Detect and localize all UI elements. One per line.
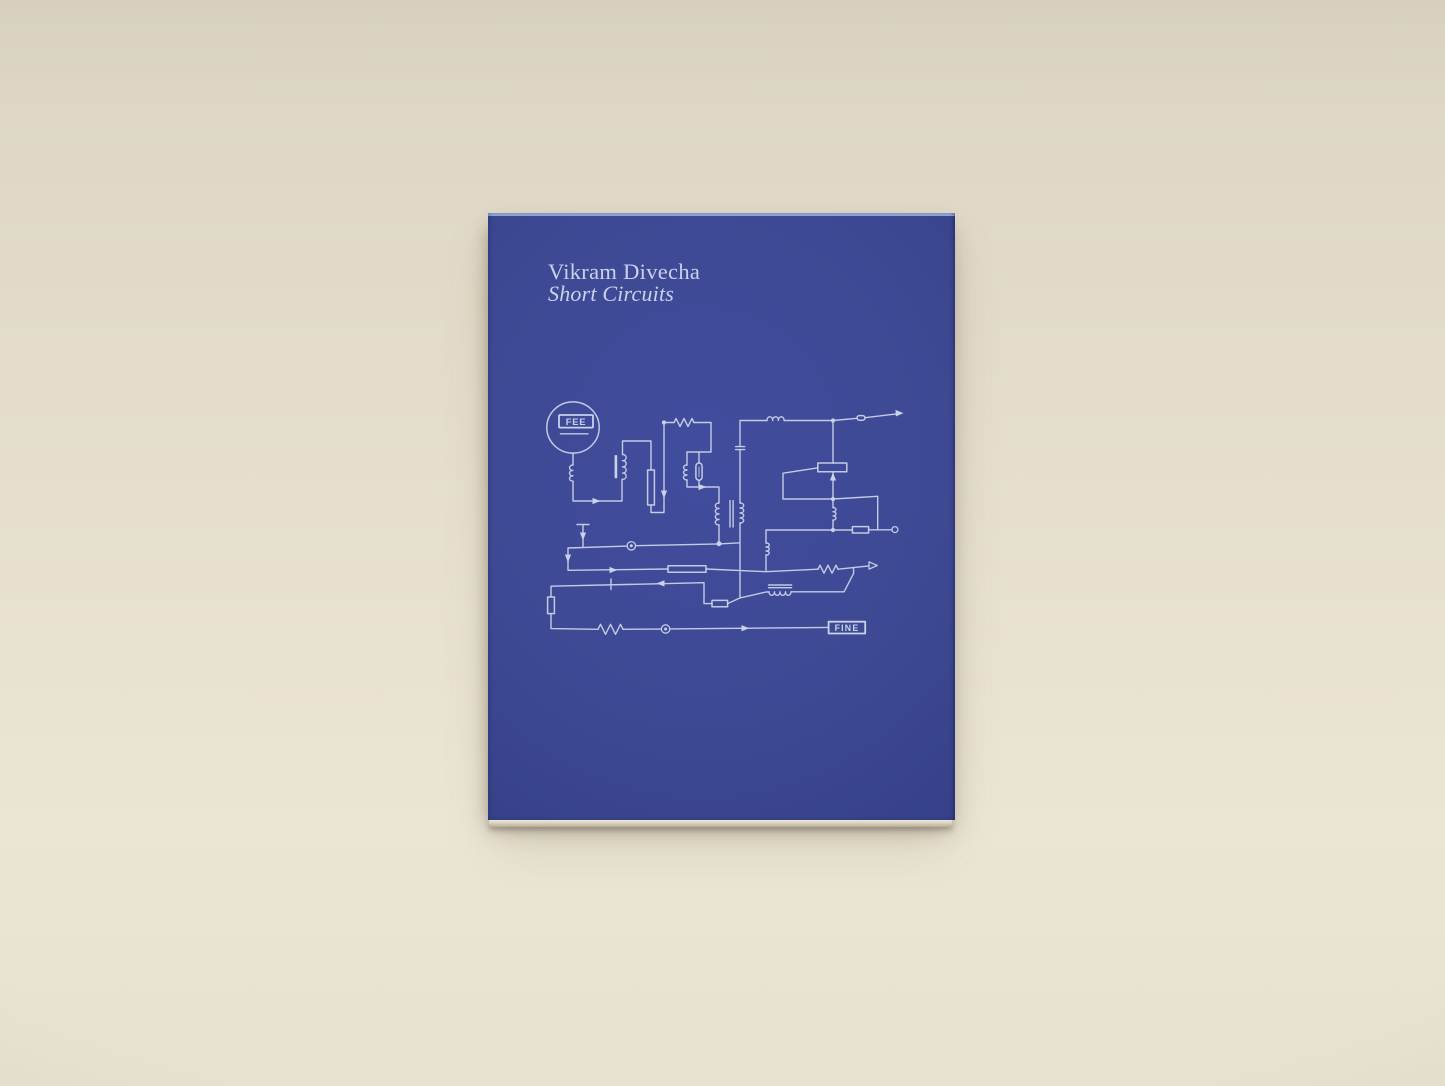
coil-core-bar — [615, 455, 618, 478]
arrow-right-icon — [610, 567, 618, 573]
junction-dot — [831, 497, 835, 501]
meter-dot — [630, 544, 633, 547]
arrow-right-icon — [742, 625, 750, 631]
resistor-box-small — [712, 600, 728, 606]
junction-dot — [831, 528, 835, 532]
arrow-up-icon — [830, 473, 836, 481]
wires — [551, 414, 897, 629]
fine-label: FINE — [835, 623, 860, 633]
junction-dot — [831, 418, 835, 422]
arrow-left-icon — [657, 580, 665, 586]
terminal-circle — [892, 527, 898, 533]
resistor-vertical-left — [548, 597, 555, 614]
book: Vikram Divecha Short Circuits FEE — [488, 213, 955, 827]
circuit-wires — [551, 414, 897, 634]
book-cover: Vikram Divecha Short Circuits FEE — [488, 213, 955, 820]
junction-dot — [717, 541, 722, 546]
arrow-right-icon — [593, 498, 601, 504]
circuit-arrows — [565, 410, 904, 631]
circuit-diagram: FEE — [488, 213, 955, 820]
potentiometer — [818, 463, 847, 472]
circuit-nodes — [627, 418, 898, 633]
meter-dot — [664, 628, 667, 631]
resistor-vertical-tall — [648, 470, 655, 505]
arrow-down-icon — [580, 533, 586, 541]
zigzag-resistors — [598, 419, 838, 635]
open-arrow-right-icon — [869, 562, 877, 569]
arrow-down-icon — [661, 491, 667, 499]
arrow-right-icon — [896, 410, 904, 417]
fee-label: FEE — [566, 417, 586, 427]
circuit-components — [548, 416, 869, 614]
resistor-box-right — [852, 527, 868, 533]
arrow-right-icon — [699, 484, 707, 490]
resistor-box-bus — [668, 566, 706, 573]
junction-dot — [662, 420, 666, 424]
inline-capsule — [857, 416, 865, 421]
photo-scene: Vikram Divecha Short Circuits FEE — [0, 0, 1445, 1086]
fee-terminal: FEE — [547, 402, 599, 453]
arrow-down-icon — [565, 555, 571, 563]
page-edges — [489, 820, 952, 827]
fine-terminal: FINE — [829, 622, 866, 634]
